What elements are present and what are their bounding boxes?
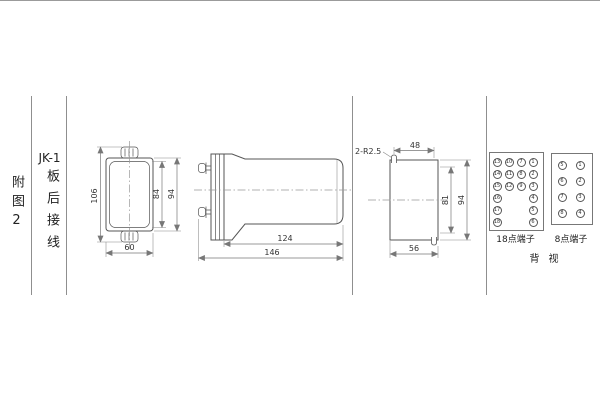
terminal-circle: 10 [505,158,514,167]
terminal-circle: 3 [529,182,538,191]
relay-model-label: JK-1 [33,151,66,165]
table-bottom-rule [0,0,600,1]
dim-label-84: 84 [152,189,161,199]
terminal-circle: 8 [558,209,567,218]
terminal-circle: 1 [576,161,585,170]
dim-label-48: 48 [410,141,420,150]
dim-label-94-cutout: 94 [457,195,466,205]
dim-label-94-front: 94 [167,189,176,199]
terminal-circle: 12 [505,182,514,191]
terminal-circle: 14 [493,170,502,179]
table-vertical-rule-1 [31,96,32,295]
terminal-circle: 15 [493,182,502,191]
terminal-8-label: 8点端子 [543,232,599,245]
terminal-circle: 4 [529,194,538,203]
slot-note-label: 2-R2.5 [355,147,381,156]
screw-terminal-top [199,164,206,173]
front-bottom-tab-hatch [125,233,133,241]
dim-label-146: 146 [264,248,279,257]
terminal-block-18: 13 10 7 1 14 11 8 2 15 12 9 3 16 4 17 5 … [489,152,544,231]
side-flange [211,154,224,240]
side-view-drawing: 124 146 [190,138,360,278]
cutout-slot-bottom [432,237,437,245]
terminal-circle: 13 [493,158,502,167]
terminal-18-label: 18点端子 [479,232,552,245]
dim-label-56: 56 [409,244,419,253]
terminal-circle: 6 [529,218,538,227]
dim-124-extensions [224,225,343,261]
terminal-circle: 16 [493,194,502,203]
screw-terminal-bottom-shaft [206,207,211,219]
side-body [224,154,343,240]
terminal-block-8: 5 1 6 2 7 3 8 4 [551,153,593,225]
terminal-circle: 7 [517,158,526,167]
figure-label: 附图2 [7,175,26,234]
terminal-circle: 3 [576,193,585,202]
screw-terminal-top-shaft [206,163,211,175]
front-top-tab-hatch [125,149,133,157]
terminal-circle: 18 [493,218,502,227]
terminal-circle: 2 [529,170,538,179]
table-vertical-rule-4 [486,96,487,295]
cutout-slot-top [392,155,397,163]
screw-terminal-bottom [199,208,206,217]
technical-drawing-sheet: 附图2 JK-1 板后接线 106 84 94 60 [0,0,600,400]
terminal-circle: 17 [493,206,502,215]
dim-label-81: 81 [441,195,450,205]
slot-note-leader [383,152,392,158]
cutout-view-drawing: 2-R2.5 48 81 94 56 [350,132,485,272]
table-vertical-rule-2 [66,96,67,295]
terminal-circle: 8 [517,170,526,179]
terminal-circle: 2 [576,177,585,186]
dim-label-124: 124 [277,234,292,243]
terminal-circle: 9 [517,182,526,191]
side-flange-inner-lines [216,154,220,240]
front-view-drawing: 106 84 94 60 [78,132,203,267]
terminal-circle: 5 [558,161,567,170]
dim-label-106: 106 [90,188,99,203]
terminal-circle: 6 [558,177,567,186]
rear-view-label: 背视 [506,250,582,265]
terminal-circle: 1 [529,158,538,167]
terminal-circle: 5 [529,206,538,215]
dim-label-60: 60 [124,243,134,252]
terminal-circle: 11 [505,170,514,179]
relay-wiring-label: 板后接线 [42,169,61,257]
terminal-circle: 4 [576,209,585,218]
terminal-circle: 7 [558,193,567,202]
